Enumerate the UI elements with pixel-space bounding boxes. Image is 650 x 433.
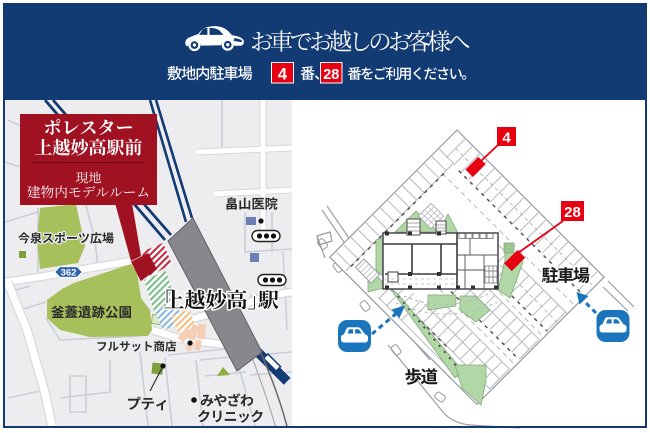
svg-text:28: 28	[323, 67, 339, 83]
svg-text:28: 28	[564, 204, 581, 221]
svg-text:362: 362	[61, 268, 77, 279]
svg-text:4: 4	[502, 130, 511, 147]
svg-text:4: 4	[278, 66, 288, 84]
